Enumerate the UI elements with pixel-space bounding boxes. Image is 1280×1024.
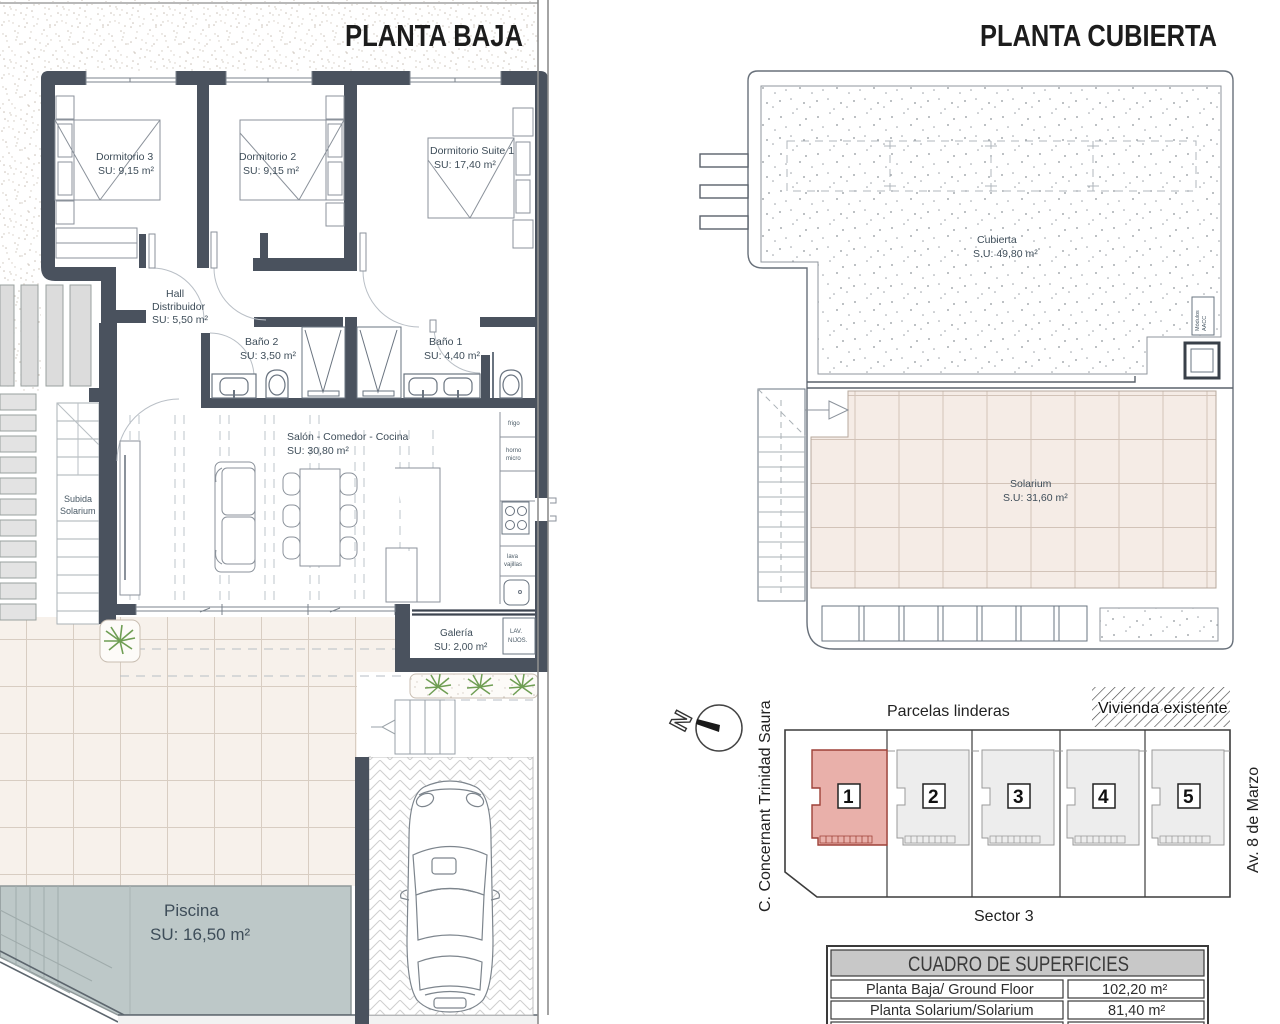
svg-text:C. Concernant Trinidad Saura: C. Concernant Trinidad Saura <box>757 700 774 912</box>
svg-text:vajillas: vajillas <box>504 562 522 568</box>
svg-text:PLANTA BAJA: PLANTA BAJA <box>345 18 523 53</box>
svg-text:CUADRO DE SUPERFICIES: CUADRO DE SUPERFICIES <box>908 953 1129 976</box>
svg-text:SU: 9,15 m²: SU: 9,15 m² <box>98 165 155 177</box>
svg-text:frigo: frigo <box>508 421 520 427</box>
svg-text:S.U: 31,60 m²: S.U: 31,60 m² <box>1003 492 1068 504</box>
svg-text:Salón - Comedor - Cocina: Salón - Comedor - Cocina <box>287 431 409 443</box>
svg-text:lava: lava <box>507 554 519 560</box>
svg-text:SU: 2,00 m²: SU: 2,00 m² <box>434 642 488 653</box>
svg-text:SU: 30,80 m²: SU: 30,80 m² <box>287 445 349 457</box>
svg-text:Sector 3: Sector 3 <box>974 908 1034 925</box>
svg-text:1: 1 <box>843 787 854 808</box>
svg-text:NIJOS.: NIJOS. <box>508 638 528 644</box>
svg-text:81,40 m²: 81,40 m² <box>1108 1003 1165 1019</box>
svg-text:Planta Baja/ Ground Floor: Planta Baja/ Ground Floor <box>866 982 1034 998</box>
svg-text:Solarium: Solarium <box>1010 478 1052 490</box>
svg-text:Hall: Hall <box>166 288 184 300</box>
svg-text:micro: micro <box>506 456 521 462</box>
svg-text:Distribuidor: Distribuidor <box>152 301 206 313</box>
svg-text:2: 2 <box>928 787 939 808</box>
svg-text:Baño 2: Baño 2 <box>245 336 278 348</box>
svg-text:Piscina: Piscina <box>164 901 219 920</box>
svg-text:Planta Solarium/Solarium: Planta Solarium/Solarium <box>870 1003 1034 1019</box>
svg-text:Dormitorio 2: Dormitorio 2 <box>239 151 296 163</box>
svg-text:LAV.: LAV. <box>510 629 522 635</box>
svg-text:Dormitorio Suite 1: Dormitorio Suite 1 <box>430 145 514 157</box>
svg-text:SU: 17,40 m²: SU: 17,40 m² <box>434 159 496 171</box>
svg-text:S.U: 49,80 m²: S.U: 49,80 m² <box>973 248 1038 260</box>
svg-text:SU: 3,50 m²: SU: 3,50 m² <box>240 350 297 362</box>
svg-text:Baño 1: Baño 1 <box>429 336 462 348</box>
svg-text:4: 4 <box>1098 787 1109 808</box>
svg-text:Parcelas linderas: Parcelas linderas <box>887 703 1010 720</box>
svg-text:Dormitorio 3: Dormitorio 3 <box>96 151 153 163</box>
svg-text:horno: horno <box>506 448 522 454</box>
svg-text:SU: 16,50 m²: SU: 16,50 m² <box>150 925 250 944</box>
svg-text:Cubierta: Cubierta <box>977 234 1017 246</box>
svg-text:Vivienda existente: Vivienda existente <box>1098 700 1228 717</box>
svg-text:Módulos: Módulos <box>1195 310 1201 331</box>
svg-text:5: 5 <box>1183 787 1194 808</box>
svg-text:Solarium: Solarium <box>60 506 96 516</box>
svg-text:SU: 5,50 m²: SU: 5,50 m² <box>152 314 209 326</box>
svg-text:3: 3 <box>1013 787 1024 808</box>
svg-text:Subida: Subida <box>64 494 92 504</box>
svg-text:PLANTA CUBIERTA: PLANTA CUBIERTA <box>980 18 1217 53</box>
svg-text:Galería: Galería <box>440 628 473 639</box>
svg-text:SU: 9,15 m²: SU: 9,15 m² <box>243 165 300 177</box>
svg-text:SU: 4,40 m²: SU: 4,40 m² <box>424 350 481 362</box>
svg-text:102,20 m²: 102,20 m² <box>1102 982 1167 998</box>
svg-text:Av. 8 de Marzo: Av. 8 de Marzo <box>1245 767 1262 873</box>
svg-text:AACC: AACC <box>1202 316 1208 331</box>
